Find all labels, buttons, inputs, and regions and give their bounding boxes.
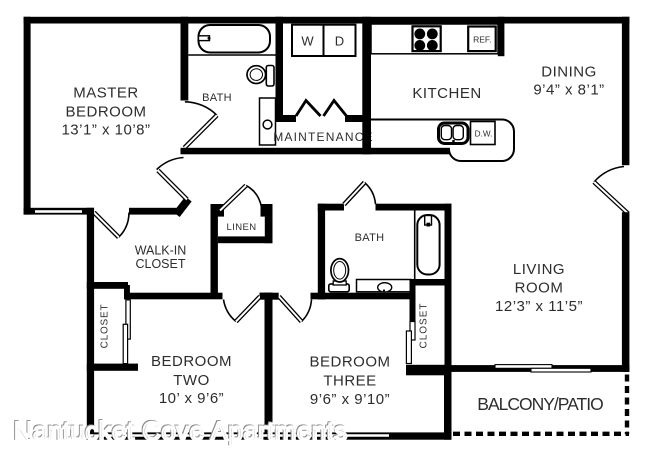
svg-text:THREE: THREE [323,373,376,390]
svg-text:REF.: REF. [473,35,491,45]
svg-text:BEDROOM: BEDROOM [151,353,232,370]
svg-text:9’6” x 9’10”: 9’6” x 9’10” [310,391,390,408]
svg-text:CLOSET: CLOSET [100,304,111,349]
svg-text:13’1” x 10’8”: 13’1” x 10’8” [61,122,150,139]
svg-text:12’3” x 11’5”: 12’3” x 11’5” [495,298,583,315]
svg-text:9’4” x 8’1”: 9’4” x 8’1” [533,82,604,99]
svg-text:D.W.: D.W. [475,130,493,139]
svg-text:CLOSET: CLOSET [135,257,185,271]
svg-text:10’ x 9’6”: 10’ x 9’6” [159,390,224,407]
svg-text:DINING: DINING [541,64,597,81]
svg-text:Nantucket Cove Apartments: Nantucket Cove Apartments [14,416,348,446]
svg-text:LIVING: LIVING [513,261,565,278]
svg-text:BEDROOM: BEDROOM [65,104,146,121]
svg-text:WALK-IN: WALK-IN [135,244,187,258]
svg-text:W: W [301,34,314,49]
svg-text:D: D [335,34,344,49]
svg-text:BATH: BATH [355,232,385,244]
svg-text:MAINTENANCE: MAINTENANCE [273,130,374,144]
svg-text:ROOM: ROOM [515,280,564,297]
svg-text:KITCHEN: KITCHEN [412,85,481,102]
svg-text:BALCONY/PATIO: BALCONY/PATIO [477,394,603,414]
svg-text:CLOSET: CLOSET [419,302,430,348]
svg-text:MASTER: MASTER [73,85,139,102]
svg-text:BEDROOM: BEDROOM [309,354,390,371]
svg-text:TWO: TWO [173,372,210,389]
svg-text:BATH: BATH [202,92,232,104]
svg-text:LINEN: LINEN [227,222,257,233]
